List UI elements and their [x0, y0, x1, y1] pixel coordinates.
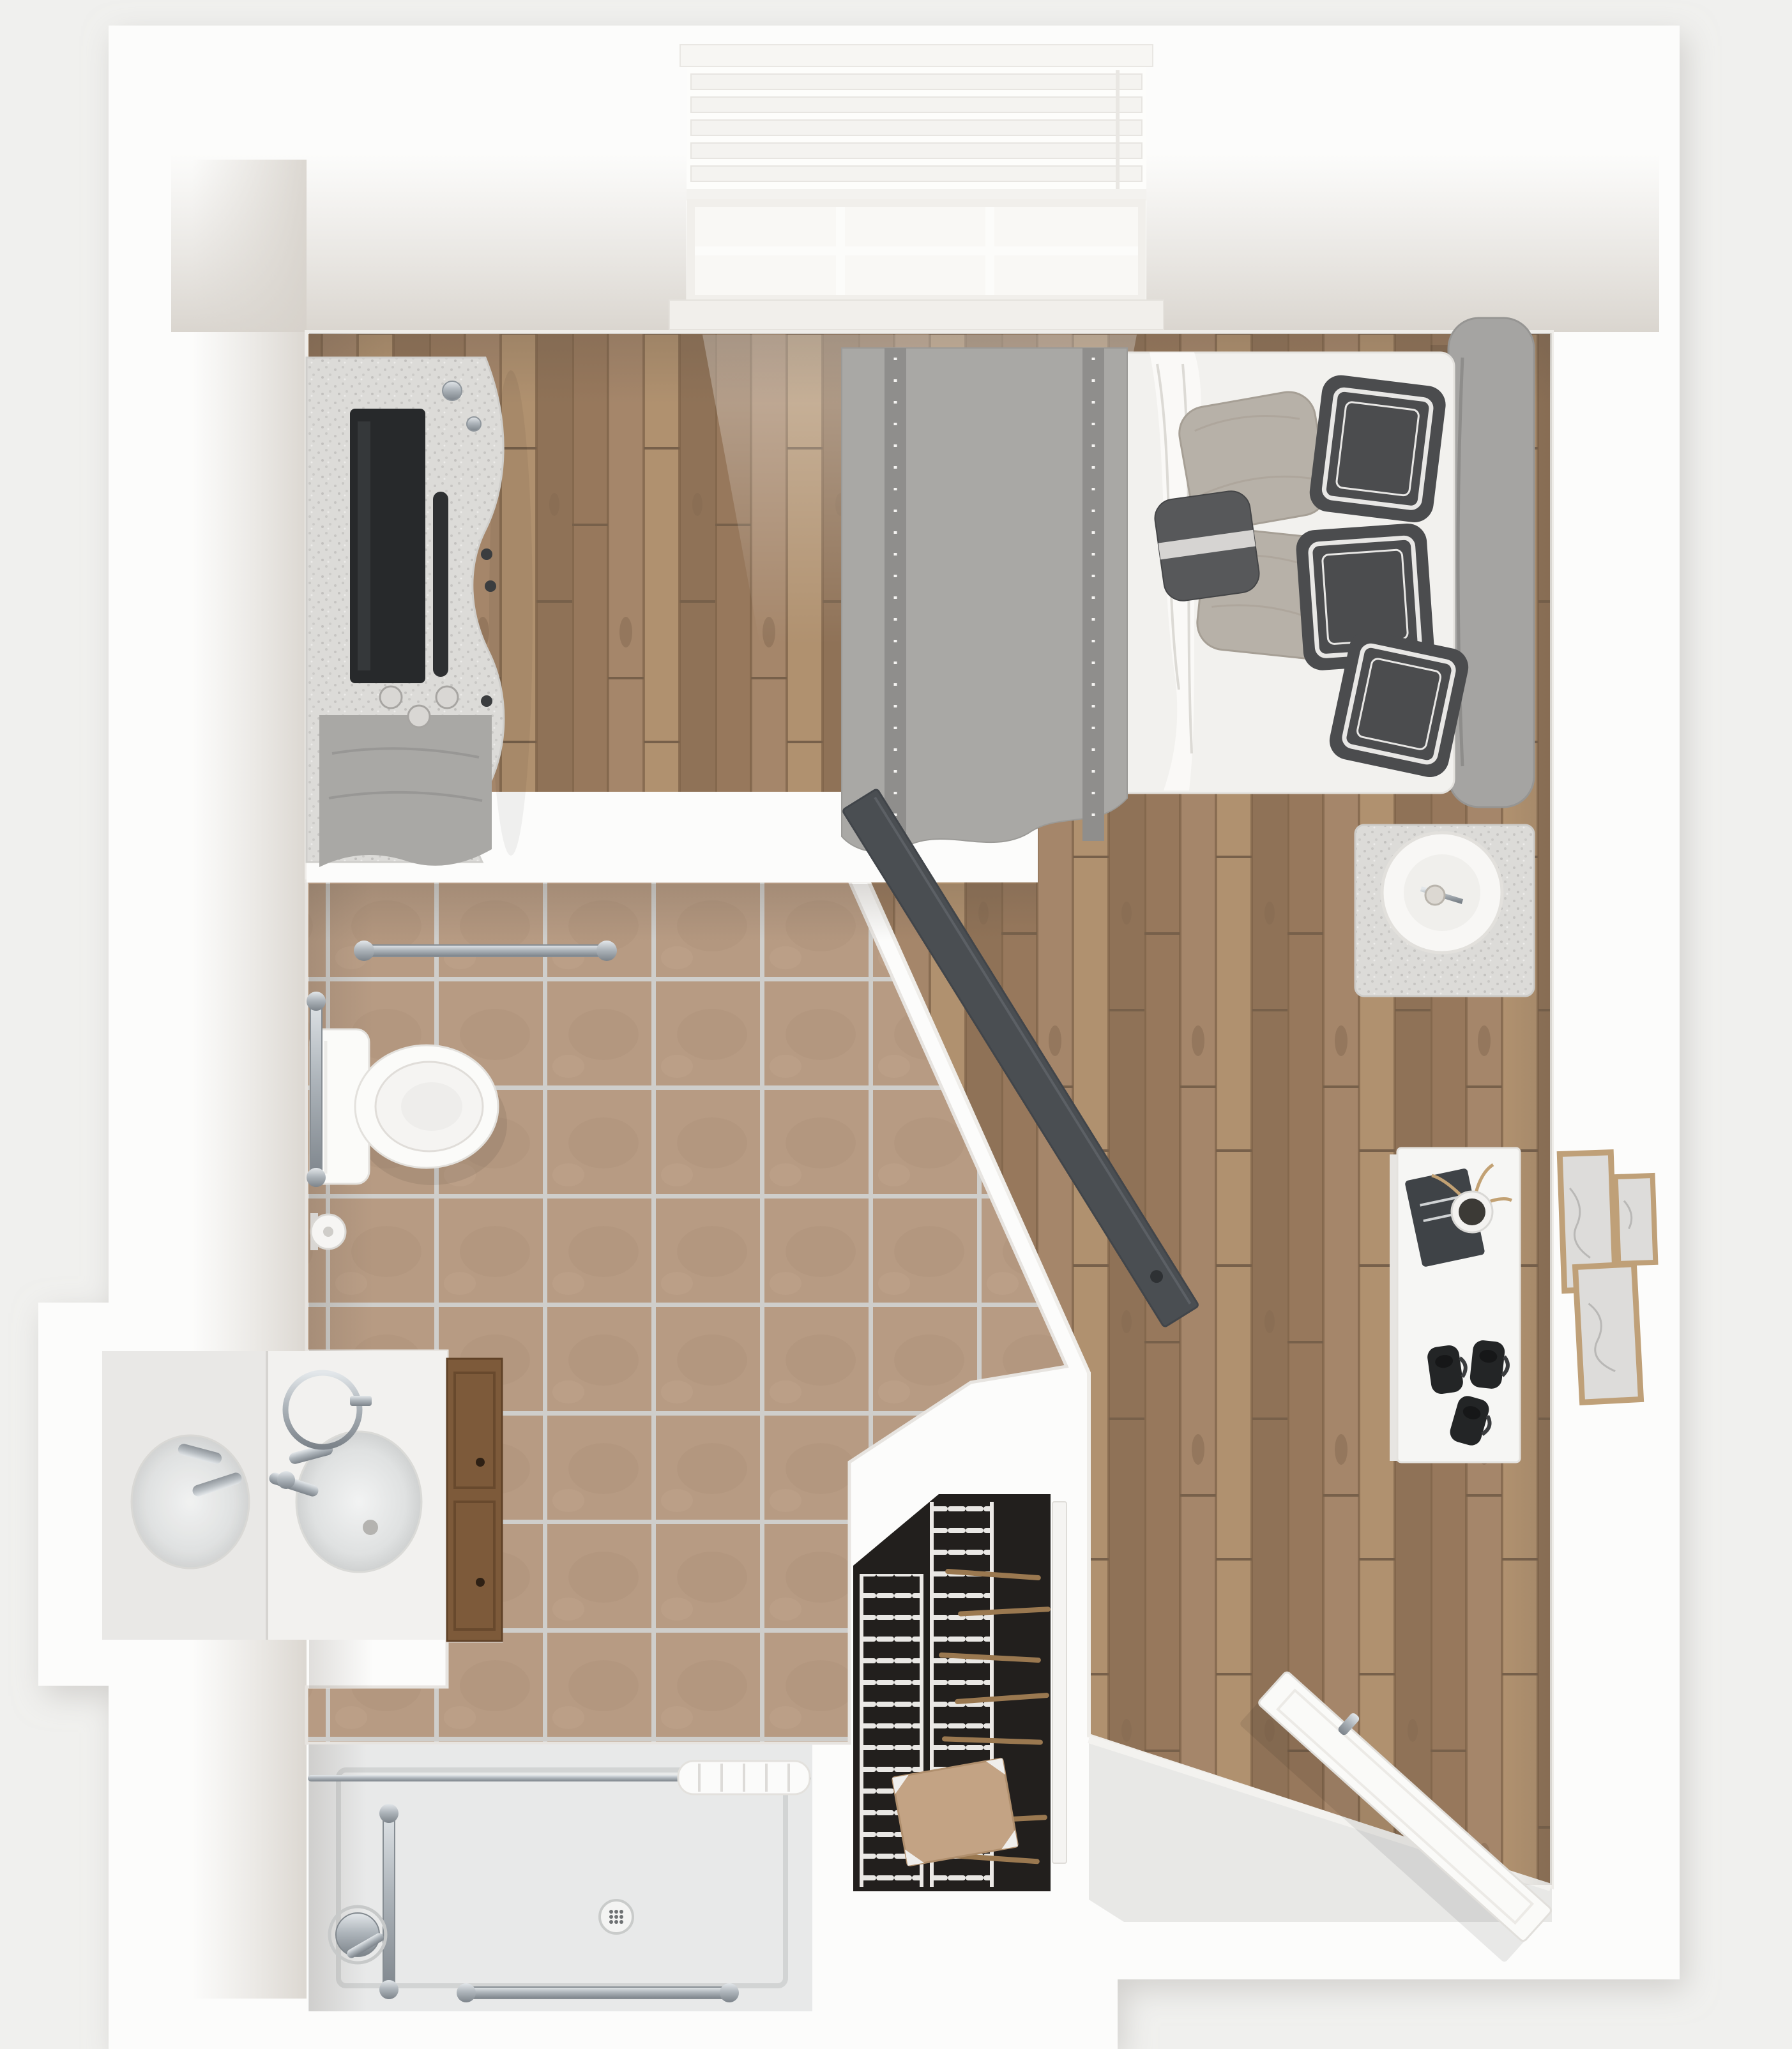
- sink-drain: [363, 1520, 378, 1535]
- left-wall-face: [192, 160, 307, 1999]
- lumbar-pillow: [1153, 488, 1262, 603]
- blanket-band: [1082, 348, 1104, 841]
- dark-pillow: [1307, 373, 1448, 524]
- vanity: [102, 1351, 502, 1641]
- floorplan-render: [0, 0, 1792, 2049]
- soundbar: [433, 492, 448, 677]
- window-sill: [669, 300, 1164, 329]
- drain-holes: [609, 1910, 623, 1924]
- closet-door-panel: [1052, 1502, 1067, 1863]
- floorplan-stage: [0, 0, 1792, 2049]
- sink-cabinet: [447, 1359, 502, 1641]
- shower-curtain: [678, 1761, 810, 1794]
- candlestick-decor: [467, 417, 481, 431]
- console-table: [1390, 1148, 1520, 1462]
- blind-headrail: [680, 45, 1153, 66]
- gallery-frame-tall: [1576, 1264, 1641, 1403]
- blanket-band: [885, 348, 906, 840]
- towel-ring-bracket: [350, 1396, 372, 1406]
- candlestick-decor: [443, 381, 462, 400]
- storage-box: [892, 1758, 1018, 1866]
- toilet-paper-holder: [310, 1213, 345, 1250]
- nightstand: [1355, 825, 1534, 996]
- shower-left-shade: [309, 1744, 367, 2011]
- dresser-with-tv: [307, 358, 533, 867]
- bed: [842, 318, 1534, 852]
- closet: [853, 1494, 1067, 1891]
- sash-rail: [687, 189, 1146, 200]
- gallery-frame-small: [1616, 1176, 1656, 1264]
- lamp-bulb: [1425, 886, 1445, 905]
- window-with-blinds: [669, 45, 1164, 329]
- shower-valve: [330, 1907, 386, 1963]
